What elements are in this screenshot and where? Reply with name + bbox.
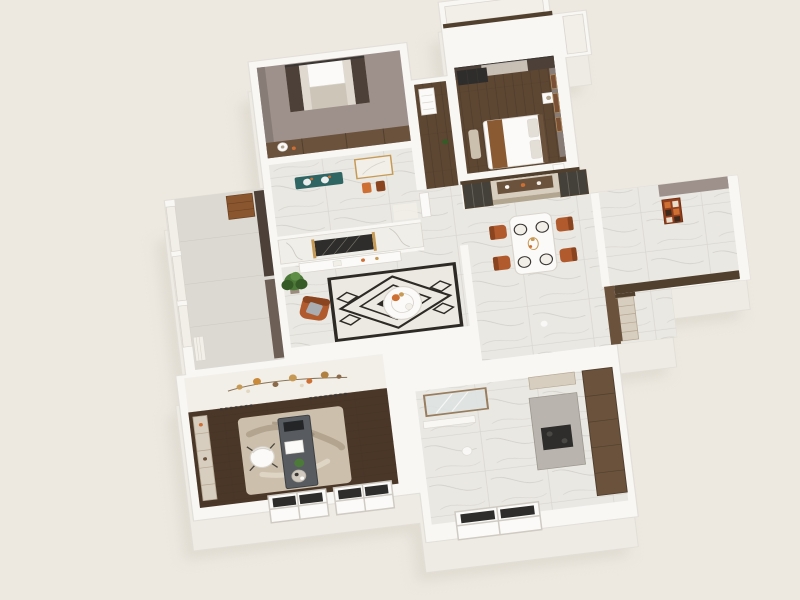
balcony-cabinet [226,193,255,219]
dining-chair [489,224,508,240]
roof-notch [563,14,587,54]
slim-cabinet [419,88,437,115]
entry-artwork [662,198,683,224]
display-cabinet-right [558,170,589,197]
dining-chair [493,255,512,271]
bed [483,114,548,169]
counter [529,392,585,470]
pillow [530,140,542,159]
floorplan [134,0,777,570]
balcony-window-recess [285,56,370,113]
door-light-patch [393,202,419,220]
dining-chair [555,216,574,232]
towel [376,180,386,191]
floorplan-canvas [0,0,800,600]
scene-svg [0,0,800,600]
cooktop [541,424,574,450]
dining-chair [559,247,578,263]
papers [285,440,304,454]
towel [362,182,372,193]
display-cabinet-left [463,181,494,208]
room-balcony [165,188,284,371]
mirror [355,155,393,178]
room-north-bedroom [257,50,411,158]
dining-table [509,212,558,275]
pillow [527,118,539,137]
